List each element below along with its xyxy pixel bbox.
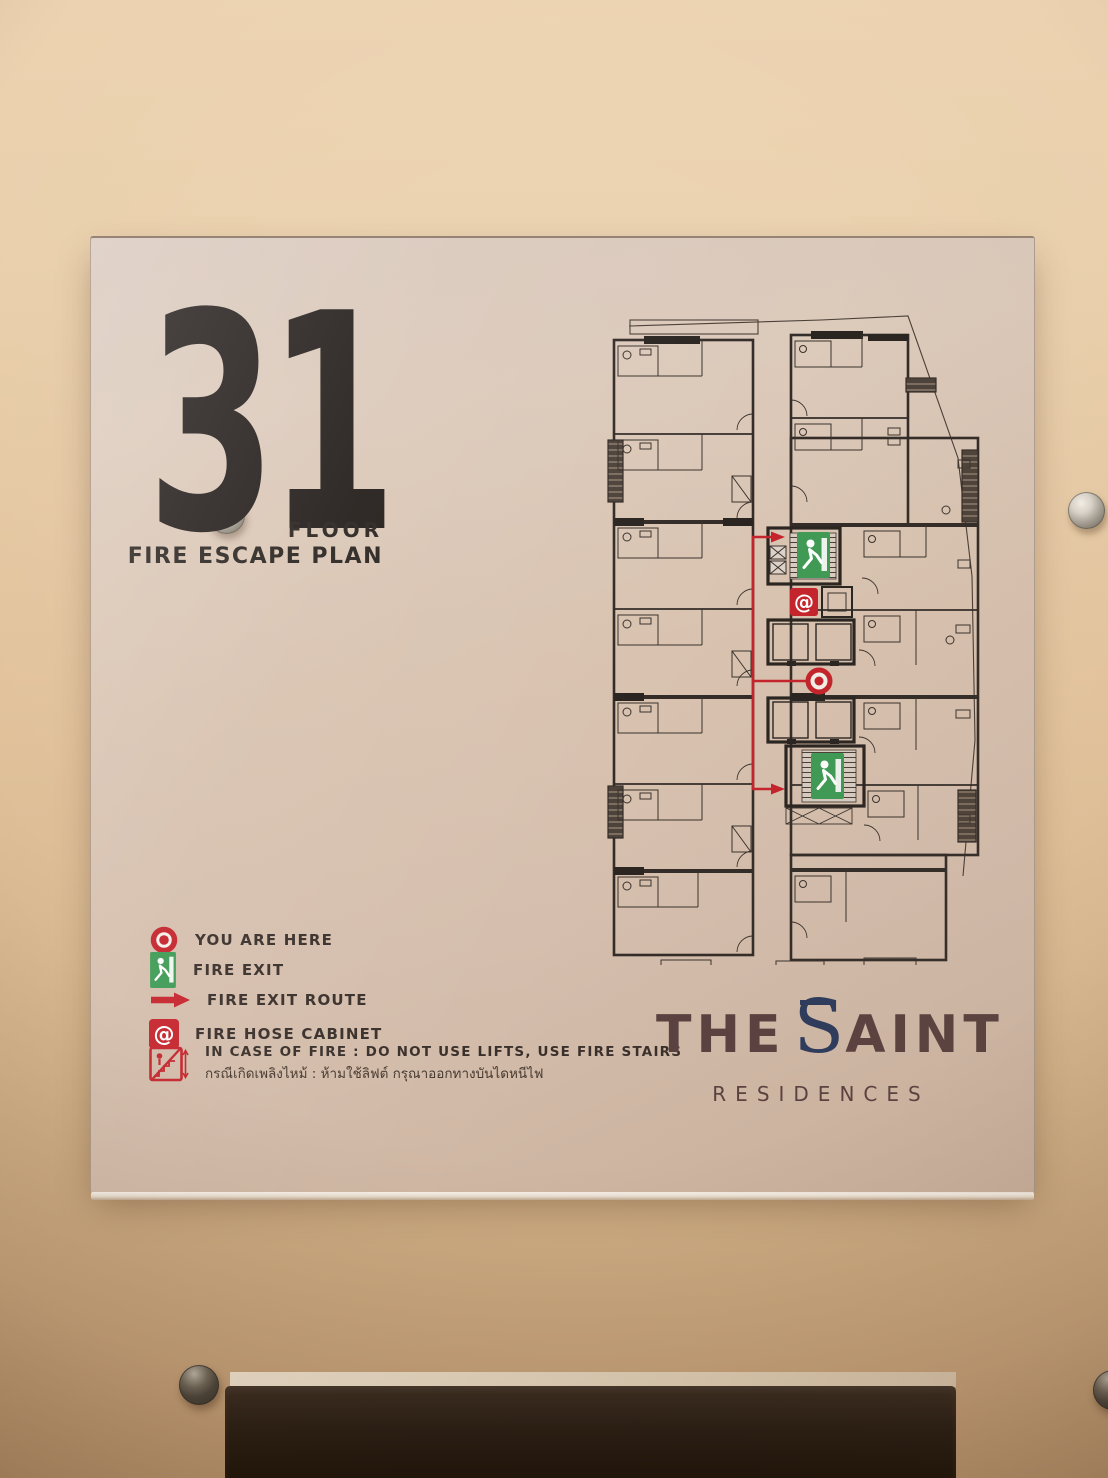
fire-hose-marker: @ bbox=[790, 587, 852, 617]
legend-item-you-are-here: YOU ARE HERE bbox=[149, 925, 333, 955]
no-lifts-use-stairs-icon bbox=[149, 1044, 189, 1084]
standoff-screw-top-right bbox=[1068, 492, 1105, 529]
you-are-here-marker bbox=[808, 670, 830, 692]
brand-word-aint: AINT bbox=[845, 1005, 1004, 1065]
brand-subtitle: RESIDENCES bbox=[656, 1082, 986, 1106]
legend-label: YOU ARE HERE bbox=[195, 931, 333, 949]
brand-letter-s: S bbox=[794, 984, 845, 1070]
plan-title: FIRE ESCAPE PLAN bbox=[91, 544, 383, 569]
lift-bank-upper bbox=[768, 620, 854, 666]
brand-s-macron-bar bbox=[800, 1000, 832, 1005]
wall: 31 FLOOR FIRE ESCAPE PLAN YOU ARE HERE bbox=[0, 0, 1108, 1478]
lift-bank-lower bbox=[768, 698, 854, 744]
svg-text:@: @ bbox=[794, 590, 814, 614]
brand-logo: THESAINT bbox=[656, 994, 986, 1065]
floor-plan: @ bbox=[606, 310, 986, 965]
standoff-screw-bottom-left bbox=[179, 1365, 219, 1405]
fire-escape-sign-panel: 31 FLOOR FIRE ESCAPE PLAN YOU ARE HERE bbox=[90, 236, 1035, 1193]
you-are-here-bullseye-icon bbox=[149, 925, 179, 955]
plan-walls bbox=[614, 335, 978, 960]
legend-label: FIRE HOSE CABINET bbox=[195, 1025, 383, 1043]
fire-exit-sign-upper bbox=[797, 532, 830, 578]
brand-word-the: THE bbox=[656, 1005, 786, 1065]
fire-exit-sign-lower bbox=[811, 753, 844, 799]
legend-item-fire-exit: FIRE EXIT bbox=[149, 952, 284, 988]
standoff-screw-bottom-right bbox=[1093, 1370, 1108, 1410]
vent-shaft bbox=[786, 808, 852, 824]
legend-label: FIRE EXIT ROUTE bbox=[207, 991, 368, 1009]
frame-top-highlight bbox=[230, 1372, 956, 1387]
legend-item-in-case-of-fire: IN CASE OF FIRE : DO NOT USE LIFTS, USE … bbox=[149, 1044, 682, 1084]
fire-exit-route-arrow-icon bbox=[149, 992, 191, 1008]
svg-text:@: @ bbox=[154, 1023, 175, 1047]
fire-exit-icon bbox=[149, 952, 177, 988]
legend-label: FIRE EXIT bbox=[193, 961, 284, 979]
acrylic-bottom-edge bbox=[91, 1192, 1034, 1200]
legend-label: IN CASE OF FIRE : DO NOT USE LIFTS, USE … bbox=[205, 1044, 682, 1060]
legend-item-fire-exit-route: FIRE EXIT ROUTE bbox=[149, 991, 368, 1009]
floor-label: FLOOR bbox=[91, 518, 383, 542]
dark-picture-frame bbox=[225, 1386, 956, 1478]
legend-label-thai: กรณีเกิดเพลิงไหม้ : ห้ามใช้ลิฟต์ กรุณาออ… bbox=[205, 1062, 682, 1084]
